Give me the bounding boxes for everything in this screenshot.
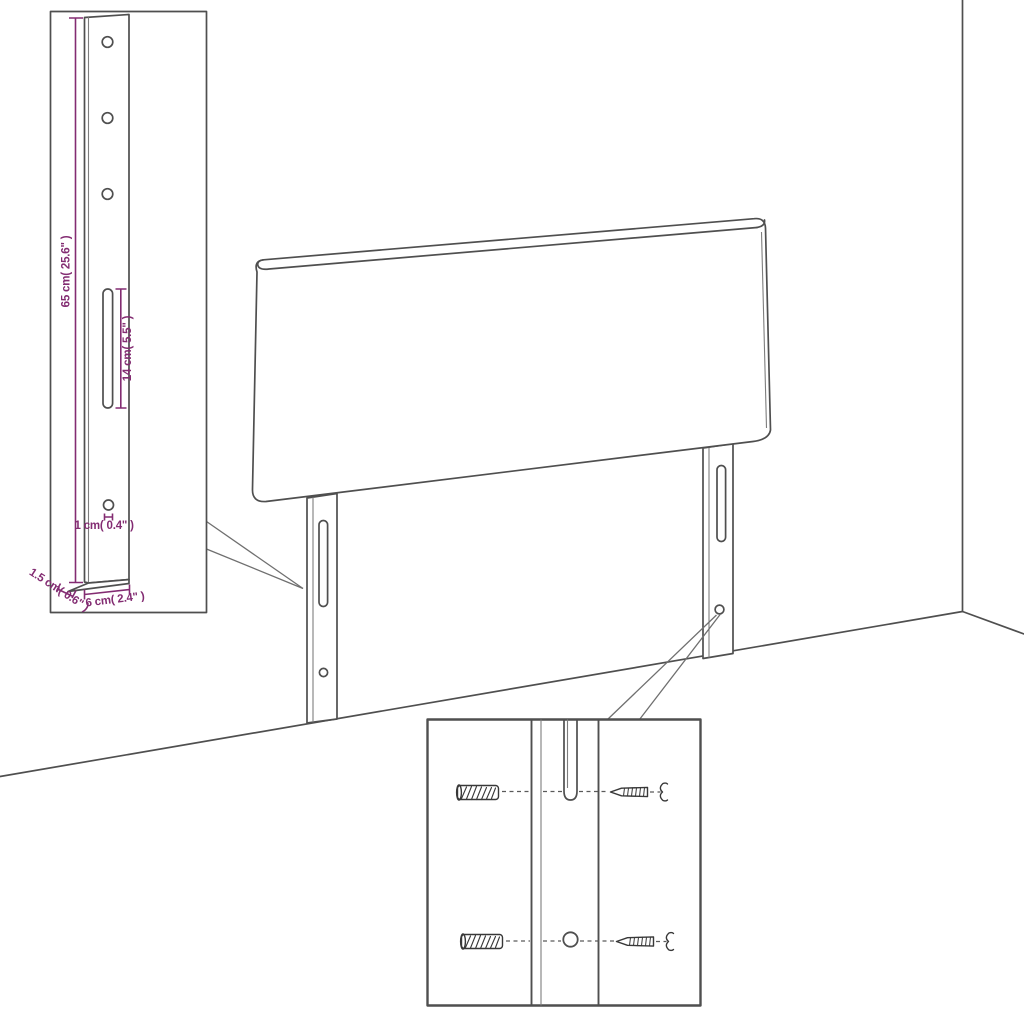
headboard-panel: [252, 219, 770, 502]
left-leg-body: [307, 494, 337, 724]
right-leg-body: [703, 444, 733, 659]
hole-size-label: 1 cm( 0.4" ): [75, 520, 135, 532]
slot-length-label: 14 cm( 5.5" ): [122, 315, 134, 381]
right-leg: [703, 444, 733, 659]
headboard-dimension-diagram: 65 cm( 25.6" ) 14 cm( 5.5" ) 1 cm( 0.4" …: [0, 0, 1024, 1024]
headboard-outline: [252, 219, 770, 502]
leg-dimension-inset: 65 cm( 25.6" ) 14 cm( 5.5" ) 1 cm( 0.4" …: [27, 12, 207, 615]
mounting-hardware-inset: [428, 720, 701, 1006]
inset-leg-bar: [85, 15, 130, 584]
left-leg: [307, 494, 337, 724]
diagram-canvas: 65 cm( 25.6" ) 14 cm( 5.5" ) 1 cm( 0.4" …: [0, 0, 1024, 1024]
leg-height-label: 65 cm( 25.6" ): [61, 235, 73, 307]
floor-line-right: [963, 612, 1024, 635]
left-callout-lines: [207, 522, 304, 589]
